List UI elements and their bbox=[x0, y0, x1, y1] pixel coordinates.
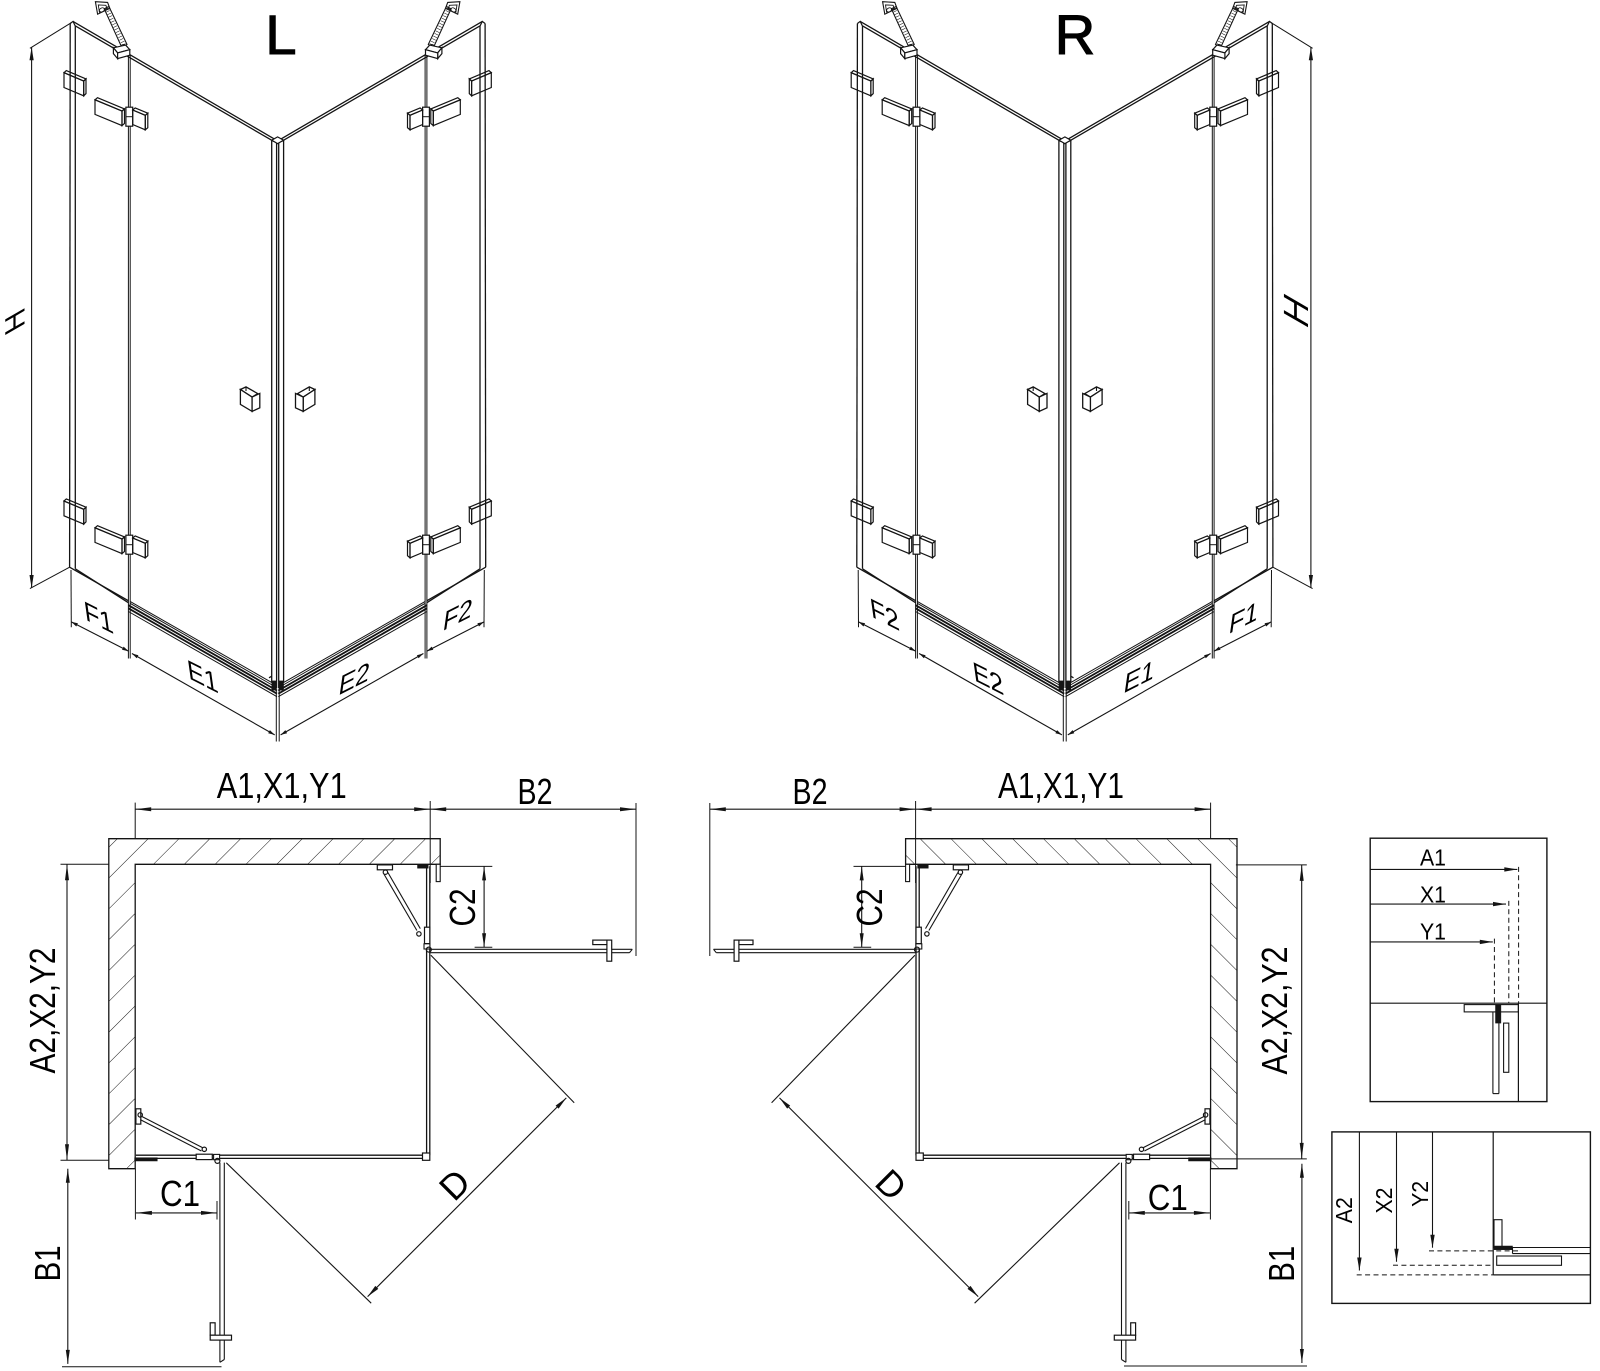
svg-text:X2: X2 bbox=[1371, 1188, 1397, 1214]
svg-text:C1: C1 bbox=[160, 1173, 200, 1214]
svg-text:B2: B2 bbox=[793, 771, 828, 812]
svg-text:L: L bbox=[265, 3, 296, 66]
svg-text:A2: A2 bbox=[1331, 1197, 1357, 1223]
svg-text:A1,X1,Y1: A1,X1,Y1 bbox=[998, 765, 1124, 806]
svg-text:Y1: Y1 bbox=[1420, 918, 1446, 944]
svg-text:A1,X1,Y1: A1,X1,Y1 bbox=[217, 765, 347, 806]
svg-text:A1: A1 bbox=[1420, 845, 1446, 871]
svg-text:B1: B1 bbox=[27, 1245, 68, 1281]
svg-text:R: R bbox=[1055, 3, 1095, 66]
svg-text:Y2: Y2 bbox=[1407, 1181, 1433, 1207]
svg-text:B2: B2 bbox=[518, 771, 553, 812]
svg-text:C2: C2 bbox=[849, 889, 890, 927]
svg-text:A2,X2,Y2: A2,X2,Y2 bbox=[22, 948, 63, 1074]
svg-text:B1: B1 bbox=[1261, 1246, 1302, 1282]
svg-text:C2: C2 bbox=[442, 889, 483, 927]
svg-text:C1: C1 bbox=[1148, 1177, 1188, 1218]
svg-text:A2,X2,Y2: A2,X2,Y2 bbox=[1254, 947, 1295, 1075]
